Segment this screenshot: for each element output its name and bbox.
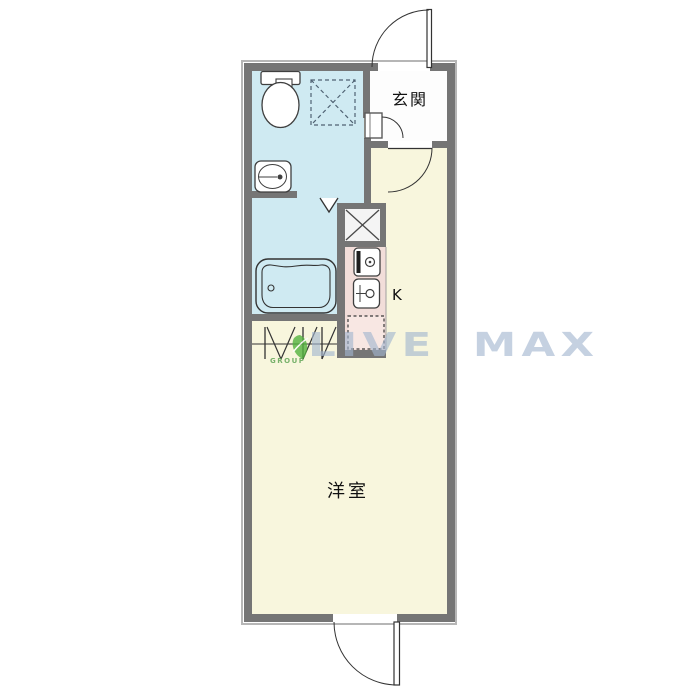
entrance-door-icon (372, 10, 432, 68)
western-room-label: 洋室 (327, 477, 369, 503)
floorplan-image: 玄関 K 洋室 GROUP LIVE MAX (0, 0, 700, 700)
watermark-brand-text: LIVE MAX (308, 325, 599, 364)
room-exit-door-icon (334, 622, 400, 685)
pipe-space (345, 209, 380, 241)
kitchen-sink-icon (354, 279, 380, 308)
washbasin-icon (255, 161, 291, 192)
watermark-group-text: GROUP (270, 357, 305, 365)
stove-icon (354, 248, 380, 276)
kitchen-room-label: K (392, 286, 402, 304)
toilet-icon (261, 72, 300, 128)
entrance-room-label: 玄関 (392, 86, 428, 110)
